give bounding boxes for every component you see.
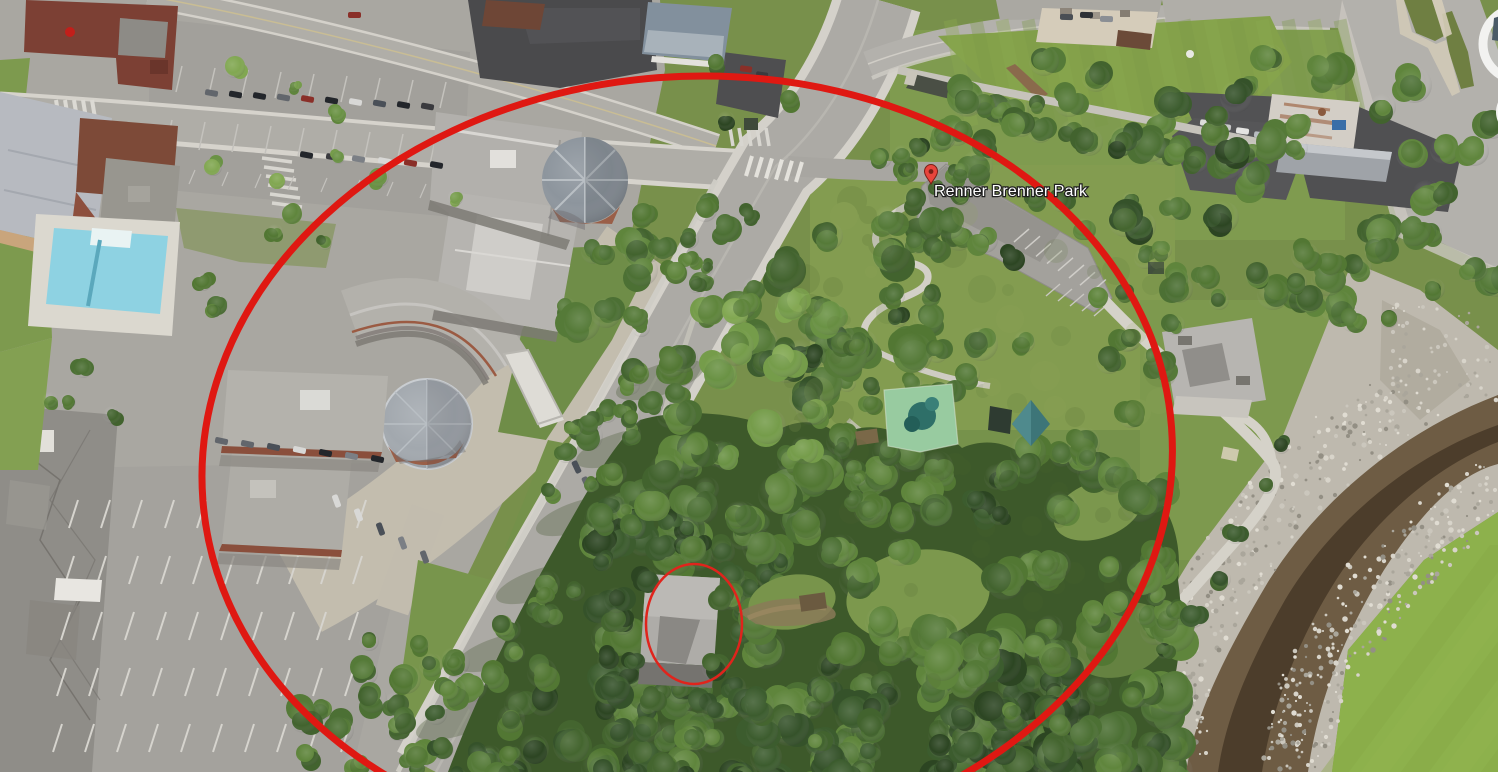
svg-text:Renner Brenner Park: Renner Brenner Park (934, 183, 1088, 200)
